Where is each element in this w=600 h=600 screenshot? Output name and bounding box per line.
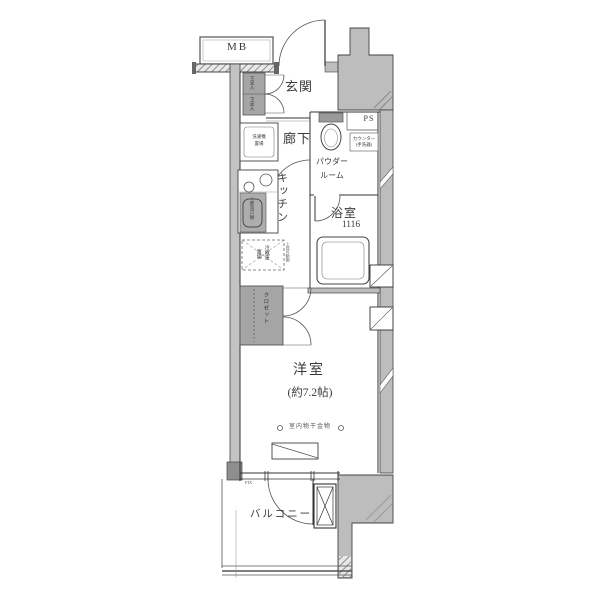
powder-room-label-line1: パウダー (314, 157, 350, 166)
upper-cabinet-label: 上部吊戸棚 (250, 197, 255, 220)
western-room-label: 洋室 (279, 363, 339, 379)
refrigerator-label-col2: 置場 (255, 249, 261, 259)
right-wall (380, 110, 393, 473)
bathroom-label: 浴室 (324, 207, 364, 221)
left-wall (230, 64, 240, 473)
evacuation-hatch-icon (314, 484, 336, 528)
bathtub-icon (317, 237, 369, 284)
pipe-space-label: PS (358, 114, 380, 123)
floor-plan: MB 玄関 廊下 キッチン パウダー ルーム PS カウンター (手洗器) 浴室… (0, 0, 600, 600)
indoor-drying-label: 室内物干金物 (275, 424, 345, 431)
bath-room-wall (308, 288, 380, 293)
hallway-label: 廊下 (275, 132, 319, 147)
washing-machine-label-line1: 洗濯機 (241, 134, 277, 139)
closet-label: クロゼット (262, 292, 268, 325)
entrance-door-arc (279, 20, 325, 66)
side-window-lower (370, 307, 393, 330)
refrigerator-label-col1: 冷蔵庫 (263, 245, 269, 260)
fix-window-label: FIX (245, 480, 252, 485)
kitchen-label: キッチン (275, 172, 288, 224)
closet-door-arcs (283, 288, 311, 345)
entrance-step (266, 118, 310, 121)
balcony-label: バルコニー (246, 509, 316, 521)
bathroom-module-label: 1116 (333, 220, 369, 231)
meter-box-label: MB (202, 41, 273, 54)
upper-shelf-label: 上部可動棚 (285, 242, 290, 262)
entrance-label: 玄関 (277, 80, 321, 95)
toilet-icon (319, 113, 343, 150)
powder-room-label-line2: ルーム (314, 171, 350, 180)
washing-machine-label-line2: 置場 (241, 141, 277, 146)
counter-furniture (272, 443, 318, 459)
shoe-cabinet-upper-label: 下足入 (250, 76, 255, 90)
side-window-upper (370, 265, 393, 287)
shoe-cabinet-lower-label: 下足入 (250, 97, 255, 111)
counter-label-line1: カウンター (350, 136, 378, 141)
counter-label-line2: (手洗器) (350, 142, 378, 147)
western-room-area-label: (約7.2帖) (270, 387, 350, 400)
balcony-window-band (240, 471, 340, 481)
